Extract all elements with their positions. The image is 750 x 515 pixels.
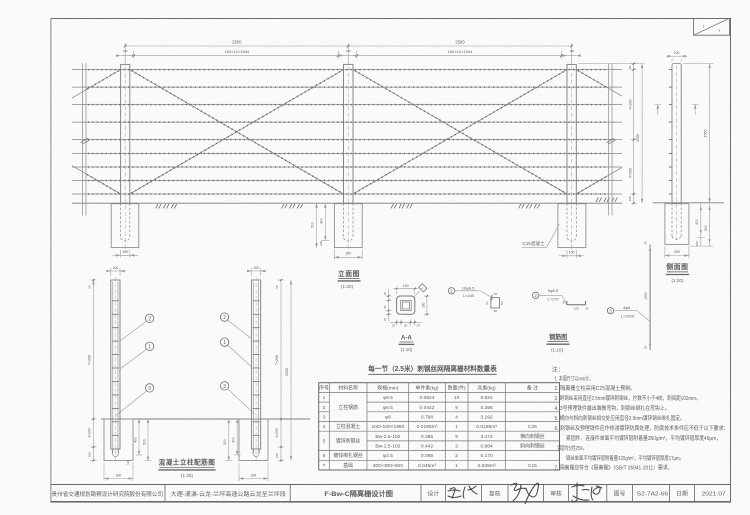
svg-text:Bw-2.5-102: Bw-2.5-102 — [375, 444, 400, 450]
svg-text:3.192: 3.192 — [480, 414, 493, 420]
svg-text:9φ6.5: 9φ6.5 — [548, 288, 559, 293]
svg-text:(1:20): (1:20) — [181, 473, 193, 478]
svg-text:基础: 基础 — [343, 462, 353, 469]
svg-text:0.0195m³: 0.0195m³ — [476, 424, 497, 430]
svg-text:25: 25 — [416, 324, 420, 328]
svg-text:100: 100 — [88, 452, 92, 457]
svg-text:100: 100 — [573, 307, 578, 311]
svg-text:162×12=1944: 162×12=1944 — [448, 49, 473, 54]
svg-text:钢筋图: 钢筋图 — [549, 332, 567, 341]
svg-text:6. 刺钢丝及预埋铁件应作热浸镀锌防腐处理，防腐技术条件应不: 6. 刺钢丝及预埋铁件应作热浸镀锌防腐处理，防腐技术条件应不低于以下要求： — [555, 424, 729, 432]
svg-text:100: 100 — [253, 266, 259, 270]
svg-text:1: 1 — [719, 29, 721, 33]
svg-text:0.798: 0.798 — [421, 414, 434, 420]
svg-text:7: 7 — [323, 463, 326, 469]
svg-text:300: 300 — [674, 250, 680, 254]
svg-text:F-Bw-C隔离栅设计图: F-Bw-C隔离栅设计图 — [324, 489, 393, 498]
svg-text:L=2020: L=2020 — [621, 314, 635, 319]
svg-text:2: 2 — [323, 405, 326, 411]
svg-text:4×200: 4×200 — [629, 100, 633, 110]
svg-text:400: 400 — [319, 218, 323, 224]
svg-text:日期: 日期 — [676, 491, 688, 498]
svg-text:备 注: 备 注 — [527, 384, 538, 391]
svg-text:100: 100 — [346, 49, 351, 53]
svg-text:1: 1 — [455, 424, 458, 430]
svg-text:0.386: 0.386 — [421, 434, 434, 440]
svg-text:100: 100 — [674, 51, 680, 55]
svg-text:C25: C25 — [528, 424, 537, 430]
svg-text:0.0442: 0.0442 — [420, 405, 435, 411]
svg-text:镀锌绑扎钢丝: 镀锌绑扎钢丝 — [333, 452, 362, 459]
svg-text:400: 400 — [695, 219, 699, 225]
svg-text:2: 2 — [148, 316, 151, 322]
svg-text:0.045m³: 0.045m³ — [418, 463, 436, 469]
svg-text:大理-漾濞-云龙-兰坪高速公路云龙至兰坪段: 大理-漾濞-云龙-兰坪高速公路云龙至兰坪段 — [171, 490, 287, 498]
svg-text:7×200: 7×200 — [275, 355, 279, 365]
svg-text:2: 2 — [455, 444, 458, 450]
svg-text:5. 横向与斜向刺钢丝相交处应用直径2.5mm镀锌钢丝绑扎固: 5. 横向与斜向刺钢丝相交处应用直径2.5mm镀锌钢丝绑扎固定。 — [555, 414, 685, 422]
svg-text:φ6.5: φ6.5 — [383, 395, 393, 401]
svg-text:500: 500 — [223, 439, 227, 445]
svg-text:300×300×500: 300×300×500 — [373, 463, 403, 469]
svg-text:9: 9 — [455, 434, 458, 440]
svg-text:(1:20): (1:20) — [671, 278, 683, 283]
svg-text:2021.07: 2021.07 — [702, 492, 726, 498]
svg-text:100: 100 — [422, 302, 426, 308]
svg-text:S2-7A2-66: S2-7A2-66 — [637, 492, 668, 498]
svg-text:0.624: 0.624 — [480, 395, 493, 401]
svg-text:1. 本图尺寸以mm计。: 1. 本图尺寸以mm计。 — [555, 375, 594, 383]
svg-text:立柱混凝土: 立柱混凝土 — [336, 423, 361, 430]
svg-text:400: 400 — [232, 437, 236, 443]
svg-text:规格(mm): 规格(mm) — [377, 384, 399, 391]
svg-text:100: 100 — [275, 453, 279, 458]
svg-text:1950: 1950 — [644, 292, 648, 300]
svg-text:50: 50 — [404, 324, 408, 328]
svg-text:3. 刺钢丝采用直径2.5mm镀锌刺钢丝，拧数不小于4绞，刺: 3. 刺钢丝采用直径2.5mm镀锌刺钢丝，拧数不小于4绞，刺间距102mm。 — [555, 394, 701, 402]
svg-text:立面图: 立面图 — [338, 269, 360, 278]
svg-text:50: 50 — [275, 285, 279, 289]
svg-text:70: 70 — [494, 292, 498, 296]
svg-text:25: 25 — [392, 324, 396, 328]
svg-text:φ8: φ8 — [385, 414, 391, 420]
svg-text:35: 35 — [644, 346, 648, 350]
svg-text:镀层均匀性25%。: 镀层均匀性25%。 — [558, 444, 587, 452]
svg-text:100: 100 — [122, 250, 128, 254]
svg-text:4φ8: 4φ8 — [623, 305, 631, 310]
svg-text:5: 5 — [323, 439, 326, 445]
svg-text:3: 3 — [148, 386, 151, 392]
svg-text:10: 10 — [454, 395, 460, 401]
svg-text:3: 3 — [223, 384, 226, 390]
svg-text:紧固件、连接件单面平均镀锌层附着量350g/m²，平均镀锌层: 紧固件、连接件单面平均镀锌层附着量350g/m²，平均镀锌层厚度49μm， — [566, 434, 721, 442]
svg-text:100: 100 — [113, 266, 119, 270]
svg-text:0.884: 0.884 — [480, 444, 493, 450]
svg-text:500: 500 — [142, 439, 146, 445]
svg-text:1: 1 — [323, 395, 326, 401]
svg-text:4×150: 4×150 — [629, 168, 633, 178]
svg-text:3.474: 3.474 — [480, 434, 493, 440]
svg-text:斜向刺钢丝: 斜向刺钢丝 — [520, 443, 545, 450]
svg-text:L=240: L=240 — [463, 293, 475, 298]
svg-text:钢丝单面平均镀锌层附着量120g/m²，平均镀锌层厚度17μ: 钢丝单面平均镀锌层附着量120g/m²，平均镀锌层厚度17μm。 — [566, 454, 684, 462]
svg-text:共重(kg): 共重(kg) — [477, 384, 496, 391]
svg-text:10φ6.5: 10φ6.5 — [462, 285, 475, 290]
svg-text:0.0195m³: 0.0195m³ — [417, 424, 438, 430]
svg-text:贵州省交通规划勘察设计研究院股份有限公司: 贵州省交通规划勘察设计研究院股份有限公司 — [52, 490, 164, 498]
svg-text:2×200: 2×200 — [275, 428, 279, 437]
svg-text:0.170: 0.170 — [480, 453, 493, 459]
svg-text:数量(件): 数量(件) — [448, 384, 466, 391]
svg-text:300: 300 — [251, 473, 257, 477]
svg-text:(1:10): (1:10) — [551, 347, 563, 352]
svg-text:500: 500 — [311, 222, 315, 228]
svg-text:φ6.5: φ6.5 — [383, 405, 393, 411]
svg-text:镀锌刺钢丝: 镀锌刺钢丝 — [336, 438, 361, 445]
svg-text:50: 50 — [88, 285, 92, 289]
svg-text:注：: 注： — [552, 366, 564, 374]
svg-text:162×12=1944: 162×12=1944 — [224, 49, 249, 54]
svg-text:材料名称: 材料名称 — [338, 384, 358, 391]
svg-text:100×100×1950: 100×100×1950 — [371, 424, 404, 430]
svg-text:1550: 1550 — [703, 130, 707, 138]
svg-text:0.442: 0.442 — [421, 444, 434, 450]
svg-text:2. 隔离栅立柱采用C25混凝土预制。: 2. 隔离栅立柱采用C25混凝土预制。 — [555, 384, 636, 392]
svg-text:0.085: 0.085 — [421, 453, 434, 459]
svg-text:4. 3号预埋铁件露出端做弯钩，刺钢丝绑扎在弯钩上。: 4. 3号预埋铁件露出端做弯钩，刺钢丝绑扎在弯钩上。 — [555, 404, 670, 412]
svg-text:2000: 2000 — [285, 368, 289, 376]
svg-text:C15混凝土: C15混凝土 — [522, 240, 545, 247]
svg-text:100: 100 — [123, 49, 128, 53]
svg-text:9: 9 — [455, 405, 458, 411]
svg-text:7. 隔离栅应符合《隔离栅》（GB/T 26941-2011: 7. 隔离栅应符合《隔离栅》（GB/T 26941-2011）要求。 — [555, 464, 673, 472]
svg-text:1: 1 — [455, 463, 458, 469]
svg-text:100: 100 — [569, 250, 575, 254]
svg-text:4: 4 — [455, 414, 458, 420]
svg-text:2500: 2500 — [455, 39, 465, 44]
svg-text:(1:10): (1:10) — [401, 347, 413, 352]
svg-text:25: 25 — [383, 292, 387, 296]
svg-text:100: 100 — [319, 241, 323, 246]
svg-text:(1:20): (1:20) — [341, 284, 353, 289]
svg-text:3: 3 — [323, 414, 326, 420]
svg-text:每一节（2.5米）刺钢丝网隔离栅材料数量表: 每一节（2.5米）刺钢丝网隔离栅材料数量表 — [368, 364, 497, 373]
svg-text:2500: 2500 — [232, 39, 242, 44]
svg-text:100: 100 — [126, 460, 130, 465]
svg-text:审核: 审核 — [550, 490, 562, 498]
svg-text:50: 50 — [500, 301, 504, 305]
svg-text:6: 6 — [323, 453, 326, 459]
svg-text:A-A: A-A — [401, 335, 413, 342]
svg-text:横向刺钢丝: 横向刺钢丝 — [520, 433, 545, 440]
svg-text:侧面图: 侧面图 — [666, 262, 688, 271]
svg-text:2: 2 — [223, 315, 226, 321]
svg-text:35: 35 — [644, 241, 648, 245]
svg-text:35: 35 — [585, 307, 589, 311]
svg-text:100: 100 — [628, 196, 632, 201]
svg-text:4: 4 — [323, 424, 326, 430]
svg-text:100: 100 — [569, 49, 574, 53]
svg-text:1: 1 — [148, 344, 151, 350]
svg-text:单件重(kg): 单件重(kg) — [415, 384, 438, 391]
svg-text:100: 100 — [403, 284, 409, 288]
svg-text:0.0624: 0.0624 — [420, 395, 435, 401]
svg-text:2: 2 — [455, 453, 458, 459]
svg-text:1: 1 — [703, 25, 705, 29]
svg-text:70: 70 — [485, 301, 489, 305]
svg-text:50: 50 — [383, 305, 387, 309]
svg-text:2×200: 2×200 — [88, 428, 92, 437]
svg-text:50: 50 — [494, 309, 498, 313]
svg-text:C15: C15 — [528, 463, 537, 469]
svg-text:1550: 1550 — [636, 134, 640, 142]
svg-text:300: 300 — [116, 473, 122, 477]
svg-text:L=170: L=170 — [547, 297, 559, 302]
svg-text:φ2.5: φ2.5 — [383, 453, 393, 459]
svg-text:400: 400 — [133, 437, 137, 443]
svg-text:500: 500 — [704, 225, 708, 231]
svg-text:混凝土立柱配筋图: 混凝土立柱配筋图 — [159, 458, 216, 467]
svg-text:35: 35 — [561, 300, 565, 304]
svg-text:50: 50 — [628, 66, 632, 70]
svg-text:序号: 序号 — [319, 384, 329, 391]
svg-text:25: 25 — [383, 318, 387, 322]
svg-text:复核: 复核 — [489, 490, 501, 498]
svg-text:立柱钢筋: 立柱钢筋 — [338, 404, 358, 411]
svg-text:1: 1 — [223, 340, 226, 346]
svg-text:设计: 设计 — [427, 490, 439, 498]
svg-text:0.398: 0.398 — [480, 405, 493, 411]
svg-text:图号: 图号 — [614, 490, 626, 498]
svg-text:Bw-2.5-102: Bw-2.5-102 — [375, 434, 400, 440]
svg-text:300: 300 — [345, 252, 351, 256]
svg-text:7×200: 7×200 — [88, 355, 92, 365]
svg-text:100: 100 — [695, 241, 699, 246]
svg-text:0.045m³: 0.045m³ — [478, 463, 496, 469]
